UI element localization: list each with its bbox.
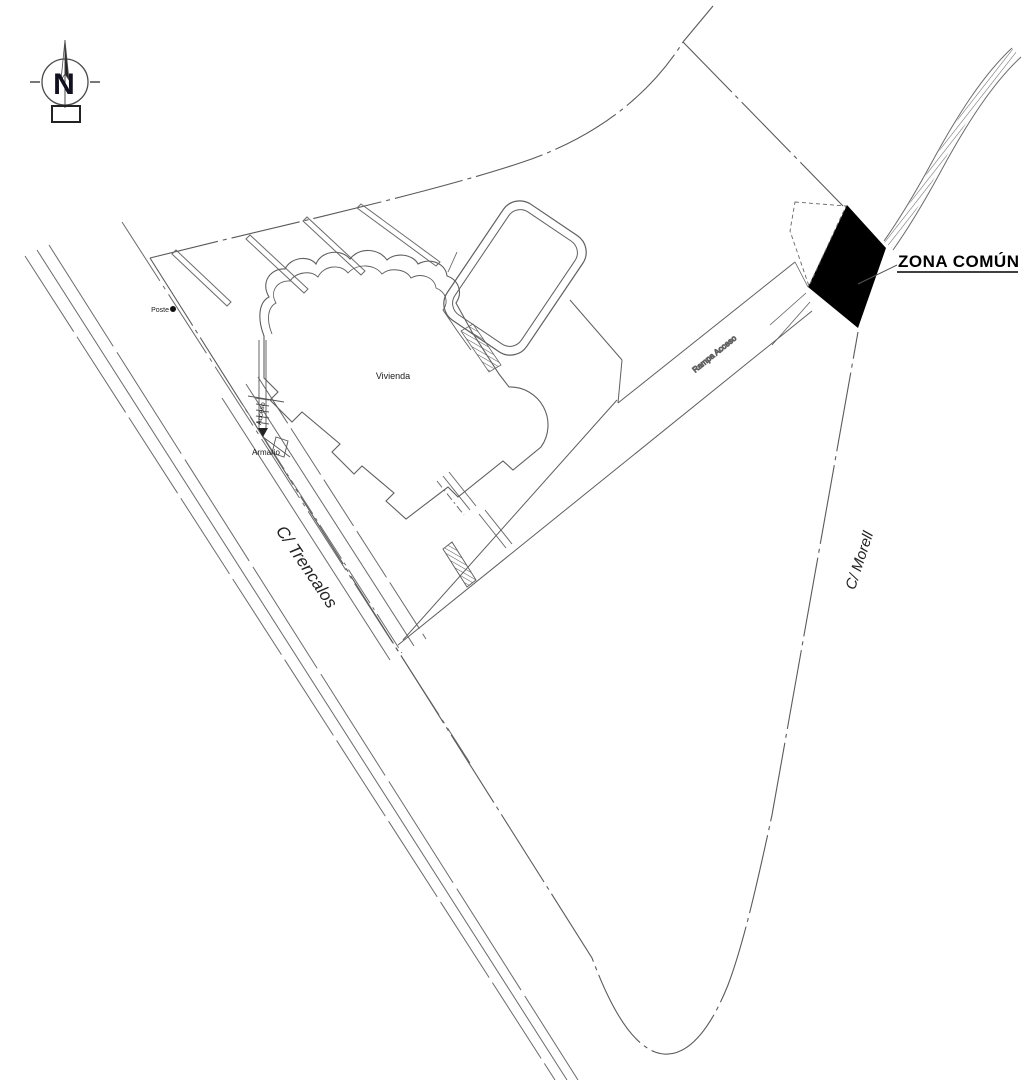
- zona-comun-label: ZONA COMÚN: [898, 252, 1019, 271]
- ramp-upper-edge: [618, 262, 795, 403]
- site-plan-drawing: N Vivienda: [0, 0, 1036, 1080]
- entrance-detail: Acceso Armario: [248, 340, 290, 457]
- terrace-corner: [618, 360, 622, 403]
- driveway-lines: [222, 377, 512, 660]
- road-hatched-morell: [884, 48, 1021, 250]
- boundary-to-zona: [683, 42, 843, 206]
- building-outline: [260, 250, 548, 519]
- site-plan-svg: N Vivienda: [0, 0, 1036, 1080]
- ramp-and-garden-edges: Rampa Acceso: [398, 262, 812, 645]
- armario-label: Armario: [252, 448, 281, 457]
- boundary-left-bottom-right: [150, 258, 858, 1054]
- poste-dot-icon: [170, 306, 176, 312]
- poste-marker: Poste: [151, 306, 176, 314]
- street-trencalos-lines: [25, 222, 578, 1080]
- north-compass-icon: N: [30, 40, 100, 122]
- vivienda-label: Vivienda: [376, 371, 410, 381]
- poste-label: Poste: [151, 307, 169, 314]
- building-vivienda: Vivienda: [260, 250, 548, 519]
- pool-terrace-edge: [570, 300, 622, 360]
- street-morell-label: C/ Morell: [842, 529, 877, 592]
- parcel-boundary: [150, 6, 858, 1054]
- steps-hatch: [443, 542, 476, 587]
- building-stairs-hatch: [461, 324, 501, 372]
- boundary-top: [150, 42, 683, 258]
- zona-comun-fill: [808, 205, 886, 328]
- garden-edge-long: [398, 311, 812, 645]
- boundary-top-spur: [683, 6, 713, 42]
- pool-deck-connector: [448, 252, 457, 272]
- north-letter: N: [53, 68, 75, 101]
- access-arrow-icon: [258, 428, 268, 437]
- garden-edge-upper: [403, 400, 617, 640]
- building-inner-line: [269, 266, 471, 350]
- pool: [436, 193, 594, 363]
